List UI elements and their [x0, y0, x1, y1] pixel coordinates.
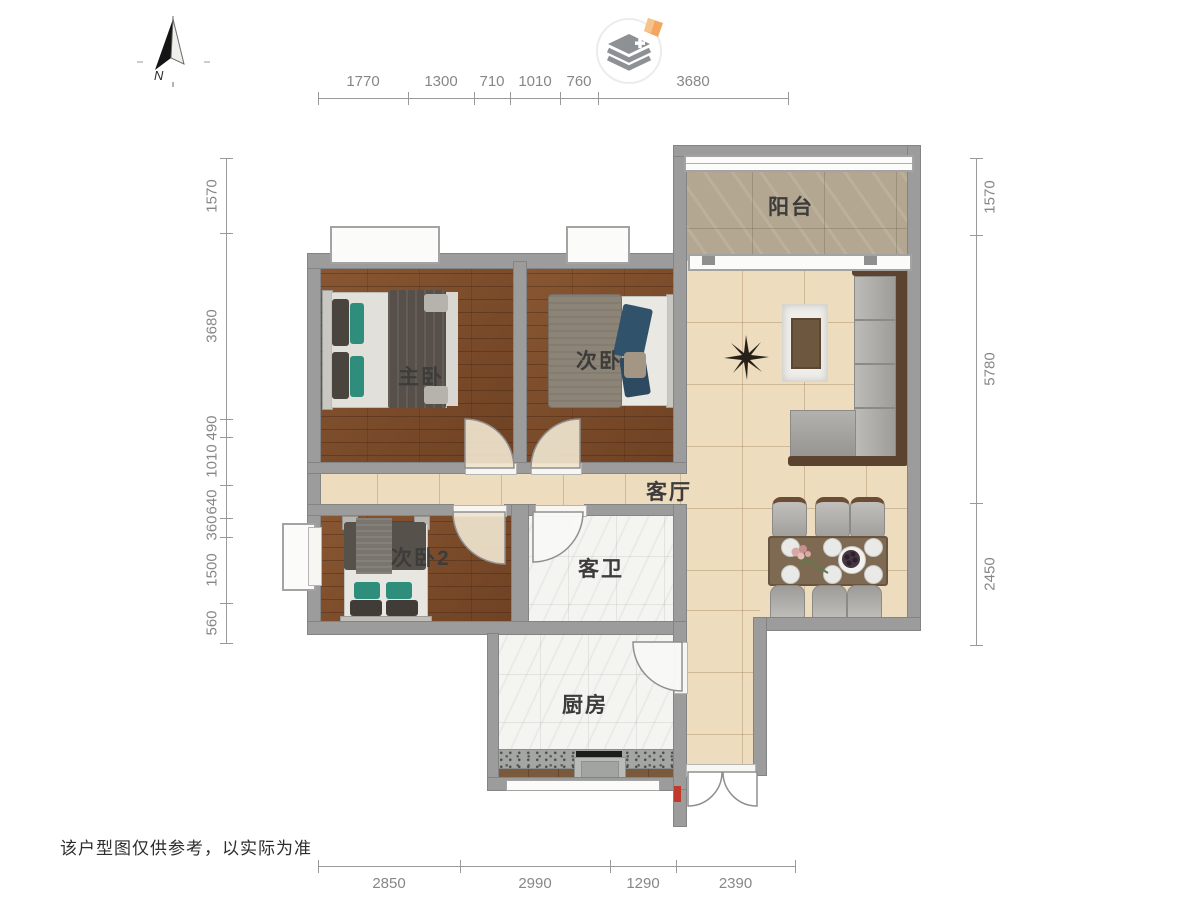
ruler-tick: [220, 485, 233, 486]
dimension-label: 1010: [204, 444, 221, 477]
plate: [864, 538, 883, 557]
pillow-teal: [350, 303, 364, 344]
room-label-balcony: 阳台: [768, 191, 814, 221]
compass-n-label: N: [154, 68, 164, 83]
pillow-teal: [386, 582, 412, 599]
ruler-tick: [970, 158, 983, 159]
wall-segment: [308, 505, 453, 515]
threshold: [535, 505, 587, 517]
plant-icon: [722, 332, 772, 382]
sofa-chaise: [790, 410, 856, 458]
flower-centerpiece: [788, 543, 832, 579]
ruler-tick: [220, 643, 233, 644]
dimension-label: 5780: [982, 352, 999, 385]
wall-segment: [512, 505, 528, 634]
threshold: [674, 642, 688, 694]
entrance-door-left: [688, 772, 722, 806]
wall-segment: [308, 622, 686, 634]
ruler-tick: [220, 537, 233, 538]
ruler-line: [976, 158, 977, 645]
dimension-label: 560: [204, 610, 221, 635]
ruler-tick: [220, 437, 233, 438]
pillow-taupe: [624, 352, 646, 378]
dining-chair: [815, 497, 850, 541]
wall-segment: [674, 148, 686, 473]
balcony-sliding-door: [688, 254, 912, 271]
dimension-label: 2850: [372, 875, 405, 892]
dimension-label: 2390: [719, 875, 752, 892]
room-label-bedroom-3: 次卧2: [391, 542, 451, 572]
ruler-tick: [788, 92, 789, 105]
dimension-label: 490: [204, 415, 221, 440]
app-logo: [592, 12, 668, 88]
foot-cushion: [424, 294, 448, 312]
dimension-label: 2990: [518, 875, 551, 892]
threshold: [531, 463, 582, 475]
bed-bedroom-3: [338, 516, 432, 628]
sofa-cushion: [854, 276, 896, 320]
ruler-tick: [510, 92, 511, 105]
room-label-master-bedroom: 主卧: [398, 361, 444, 391]
ruler-tick: [408, 92, 409, 105]
dining-chair: [850, 497, 885, 541]
dimension-label: 360: [204, 515, 221, 540]
wall-segment: [754, 618, 766, 775]
ruler-tick: [318, 860, 319, 873]
sliding-door-handle: [864, 256, 877, 265]
wall-segment: [674, 505, 686, 622]
floor-hallway: [680, 610, 760, 770]
wall-segment: [308, 254, 320, 527]
balcony-window: [684, 155, 914, 172]
sliding-door-handle: [702, 256, 715, 265]
throw: [356, 518, 392, 574]
entrance-threshold: [686, 764, 756, 777]
dimension-label: 760: [566, 73, 591, 90]
ruler-tick: [460, 860, 461, 873]
sink-basin: [581, 761, 619, 778]
wall-segment: [308, 463, 465, 473]
wall-segment: [674, 692, 686, 790]
room-label-guest-bathroom: 客卫: [578, 553, 624, 583]
ruler-tick: [970, 645, 983, 646]
sofa-cushion: [854, 408, 896, 458]
dimension-label: 1010: [518, 73, 551, 90]
disclaimer-text: 该户型图仅供参考，以实际为准: [60, 834, 312, 859]
dimension-label: 1500: [204, 553, 221, 586]
sofa-cushion: [854, 320, 896, 364]
wall-segment: [754, 618, 920, 630]
dimension-label: 3680: [676, 73, 709, 90]
ruler-line: [318, 866, 795, 867]
north-compass: N: [132, 10, 222, 92]
coffee-table: [791, 318, 821, 369]
ruler-tick: [610, 860, 611, 873]
dining-chair: [772, 497, 807, 541]
room-label-living-room: 客厅: [646, 476, 692, 506]
ruler-tick: [795, 860, 796, 873]
kitchen-window: [506, 780, 660, 791]
dimension-label: 640: [204, 489, 221, 514]
window-bedroom-2: [566, 226, 630, 264]
entrance-door-right: [723, 772, 757, 806]
dimension-label: 710: [479, 73, 504, 90]
dimension-label: 1300: [424, 73, 457, 90]
threshold: [308, 527, 322, 586]
wall-segment: [674, 622, 686, 642]
ruler-tick: [970, 503, 983, 504]
dimension-label: 1770: [346, 73, 379, 90]
wall-segment: [585, 505, 686, 515]
ruler-tick: [220, 233, 233, 234]
ruler-tick: [474, 92, 475, 105]
sofa-frame-back: [894, 264, 908, 462]
plate: [864, 565, 883, 584]
ruler-tick: [220, 518, 233, 519]
ruler-tick: [318, 92, 319, 105]
dining-set: [764, 493, 906, 625]
floorplan-page: { "page": { "disclaimer": "该户型图仅供参考，以实际为…: [0, 0, 1200, 900]
ruler-tick: [220, 158, 233, 159]
ruler-line: [318, 98, 788, 99]
pillow: [350, 600, 382, 616]
wall-segment: [488, 634, 498, 790]
room-label-kitchen: 厨房: [562, 689, 608, 719]
ruler-line: [226, 158, 227, 643]
dimension-label: 2450: [982, 557, 999, 590]
threshold: [453, 505, 507, 517]
red-door-marker: [674, 786, 681, 802]
fruit-bowl: [841, 549, 861, 569]
dimension-label: 1290: [626, 875, 659, 892]
dimension-label: 1570: [982, 180, 999, 213]
dimension-label: 3680: [204, 309, 221, 342]
ruler-tick: [676, 860, 677, 873]
window-master-bedroom: [330, 226, 440, 264]
threshold: [465, 463, 517, 475]
wall-segment: [908, 146, 920, 630]
dimension-label: 1570: [204, 179, 221, 212]
ruler-tick: [560, 92, 561, 105]
wall-segment: [580, 463, 686, 473]
sofa-frame-bottom: [788, 456, 908, 466]
ruler-tick: [970, 235, 983, 236]
pillow-teal: [354, 582, 380, 599]
sofa-cushion: [854, 364, 896, 408]
pillow: [332, 299, 349, 346]
pillow-teal: [350, 356, 364, 397]
room-label-bedroom-2: 次卧: [576, 345, 622, 375]
wall-segment: [514, 262, 526, 473]
ruler-tick: [598, 92, 599, 105]
pillow: [386, 600, 418, 616]
ruler-tick: [220, 419, 233, 420]
ruler-tick: [220, 603, 233, 604]
pillow: [332, 352, 349, 399]
